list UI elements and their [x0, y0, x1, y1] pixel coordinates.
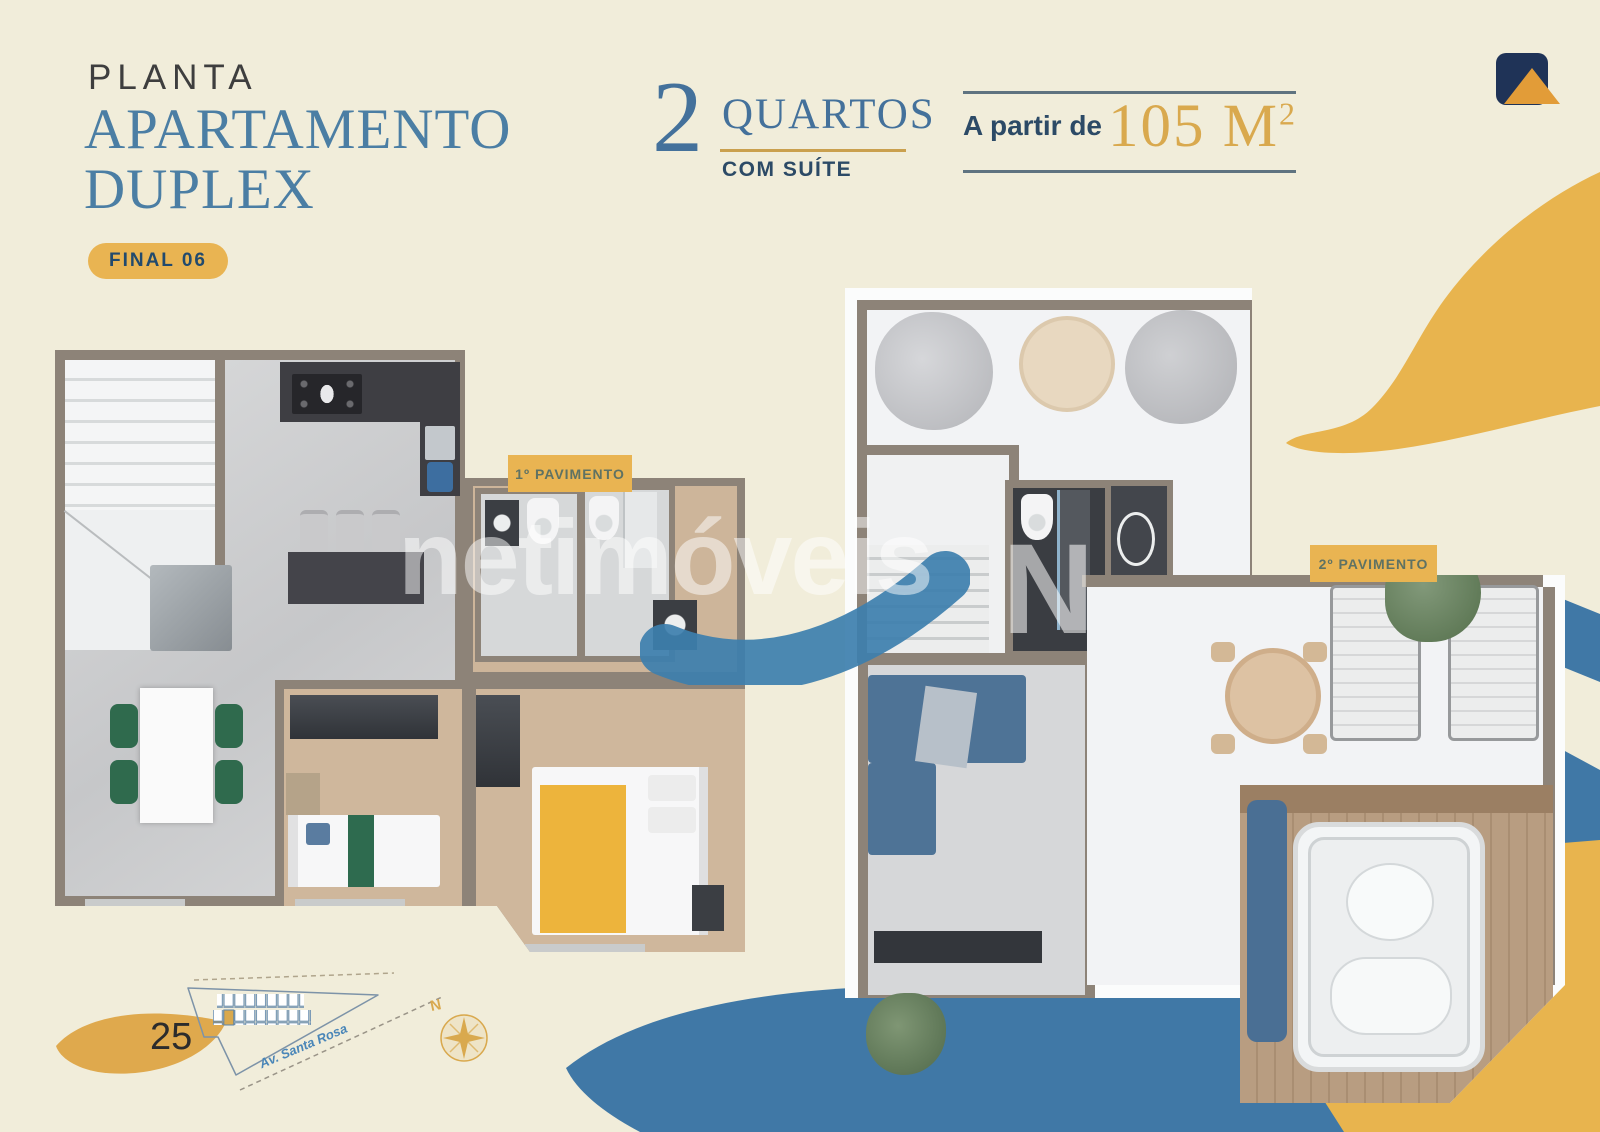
brochure-page: PLANTA APARTAMENTO DUPLEX FINAL 06 2 QUA…: [0, 0, 1600, 1132]
street-label: Av. Santa Rosa: [256, 1021, 349, 1072]
page-title-line1: APARTAMENTO: [84, 97, 511, 162]
terrace-chair: [1303, 642, 1327, 662]
fridge: [150, 565, 232, 651]
hot-tub-seat: [1330, 957, 1452, 1035]
site-boundary-dashed: [194, 973, 394, 980]
dresser: [286, 773, 320, 815]
dining-chair: [110, 704, 138, 748]
hot-tub-seat: [1346, 863, 1434, 941]
gold-underline: [720, 149, 906, 152]
hot-tub: [1293, 822, 1485, 1072]
window: [85, 899, 185, 907]
page-number: 25: [150, 1016, 192, 1059]
dining-chair: [215, 704, 243, 748]
bar-stool: [300, 510, 328, 554]
terrace-round-table: [1225, 648, 1321, 744]
stair-treads: [65, 360, 215, 510]
double-bed: [532, 767, 708, 935]
headboard: [288, 815, 298, 887]
terrace-chair: [1211, 734, 1235, 754]
pillow: [648, 807, 696, 833]
compass-rose-icon: N: [424, 988, 496, 1072]
sofa-chaise: [868, 763, 936, 855]
shower-tub: [1117, 512, 1155, 566]
nightstand: [692, 885, 724, 931]
area-value: 105 M2: [1108, 92, 1297, 162]
bar-stool: [336, 510, 364, 554]
wardrobe: [290, 695, 438, 739]
unit-row: [217, 994, 304, 1008]
blue-wave: [566, 985, 1344, 1132]
yellow-throw: [540, 785, 626, 933]
kitchen-appliance: [425, 426, 455, 460]
bar-stool: [372, 510, 400, 554]
watermark-logo-mark: N: [1002, 516, 1094, 663]
second-pavement-label: 2º PAVIMENTO: [1319, 556, 1429, 572]
pillow: [306, 823, 330, 845]
rooms-sublabel: COM SUÍTE: [722, 158, 852, 182]
round-wood-table: [1019, 316, 1115, 412]
first-pavement-label: 1º PAVIMENTO: [515, 466, 625, 482]
compass-north-label: N: [429, 996, 443, 1015]
round-pouf: [1125, 310, 1237, 424]
dining-chair: [215, 760, 243, 804]
first-pavement-badge: 1º PAVIMENTO: [508, 455, 632, 492]
divider-bottom: [963, 170, 1296, 173]
rooms-label: QUARTOS: [722, 90, 936, 139]
kitchen-sink: [427, 462, 453, 492]
terrace-chair: [1303, 734, 1327, 754]
dining-chair: [110, 760, 138, 804]
bedroom-1: [275, 680, 471, 916]
round-pouf: [875, 312, 993, 430]
second-pavement-badge: 2º PAVIMENTO: [1310, 545, 1437, 582]
unit-badge: FINAL 06: [88, 243, 228, 279]
unit-badge-label: FINAL 06: [109, 250, 207, 272]
bench-cushion: [1247, 800, 1287, 1042]
tv-room: [858, 655, 1095, 1005]
single-bed: [288, 815, 440, 887]
window: [295, 899, 405, 907]
rooms-number: 2: [652, 64, 703, 171]
area-prefix: A partir de: [963, 110, 1102, 142]
page-title-line2: DUPLEX: [84, 157, 315, 222]
pillow: [648, 775, 696, 801]
sofa-throw: [915, 686, 977, 768]
brand-logo-triangle-icon: [1504, 68, 1560, 104]
bed-runner: [348, 815, 374, 887]
area-number: 105 M: [1108, 93, 1279, 160]
window: [525, 944, 645, 952]
page-kicker: PLANTA: [88, 58, 258, 98]
wardrobe: [476, 695, 520, 787]
tv-console: [874, 931, 1042, 963]
area-superscript: 2: [1279, 96, 1297, 132]
dining-table: [140, 688, 213, 823]
gold-top-blob: [1286, 172, 1600, 453]
watermark-text: netimóveis: [398, 498, 932, 619]
highlighted-unit: [224, 1010, 234, 1025]
stove: [292, 374, 362, 414]
terrace-chair: [1211, 642, 1235, 662]
